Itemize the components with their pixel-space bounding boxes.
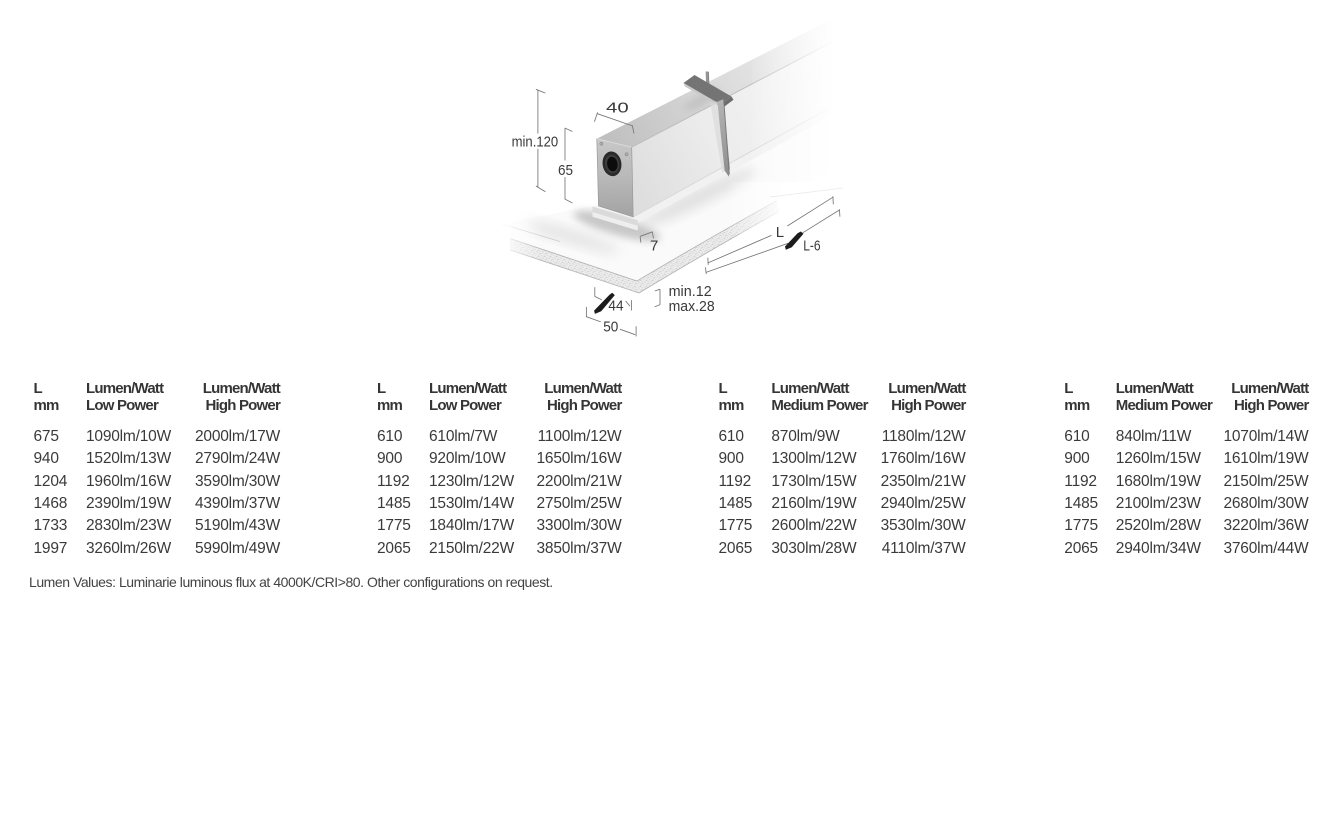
- svg-text:min.120: min.120: [512, 133, 559, 150]
- svg-text:50: 50: [603, 319, 618, 336]
- svg-text:max.28: max.28: [669, 298, 715, 315]
- svg-text:7: 7: [650, 238, 658, 255]
- svg-text:65: 65: [558, 162, 573, 179]
- svg-text:44: 44: [608, 298, 623, 315]
- svg-text:40: 40: [606, 100, 629, 117]
- svg-text:L: L: [776, 224, 784, 241]
- svg-text:L-6: L-6: [803, 238, 820, 255]
